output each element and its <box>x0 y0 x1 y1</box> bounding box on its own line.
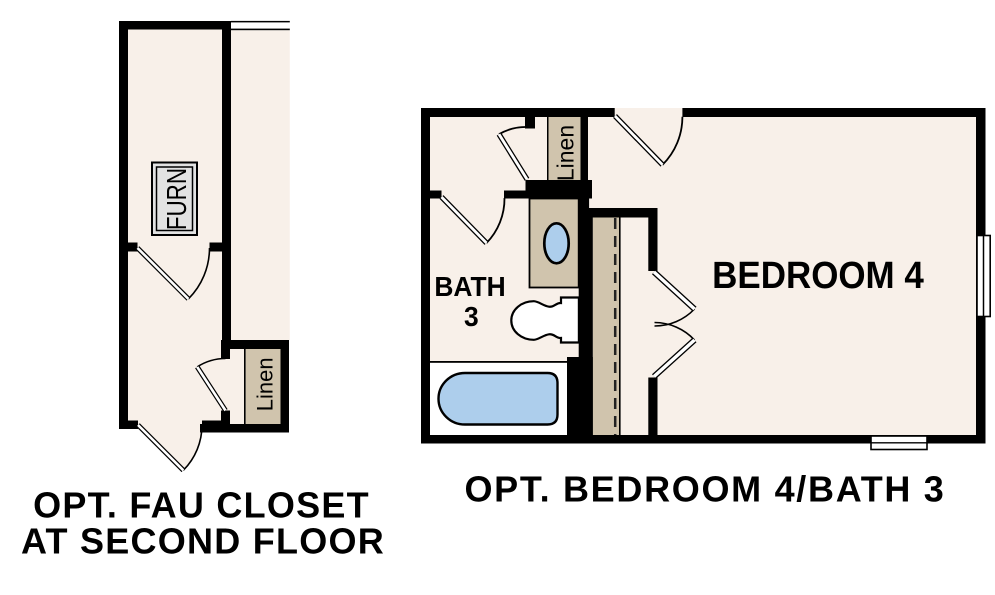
svg-text:3: 3 <box>464 302 479 333</box>
svg-text:OPT. BEDROOM 4/BATH 3: OPT. BEDROOM 4/BATH 3 <box>464 469 945 510</box>
svg-text:Linen: Linen <box>253 357 278 411</box>
svg-text:BATH: BATH <box>434 272 505 303</box>
svg-text:BEDROOM 4: BEDROOM 4 <box>712 254 924 297</box>
svg-text:OPT. FAU CLOSET: OPT. FAU CLOSET <box>33 485 370 526</box>
svg-text:FURN: FURN <box>162 168 193 230</box>
svg-text:Linen: Linen <box>553 125 579 181</box>
svg-text:AT SECOND FLOOR: AT SECOND FLOOR <box>21 521 385 562</box>
